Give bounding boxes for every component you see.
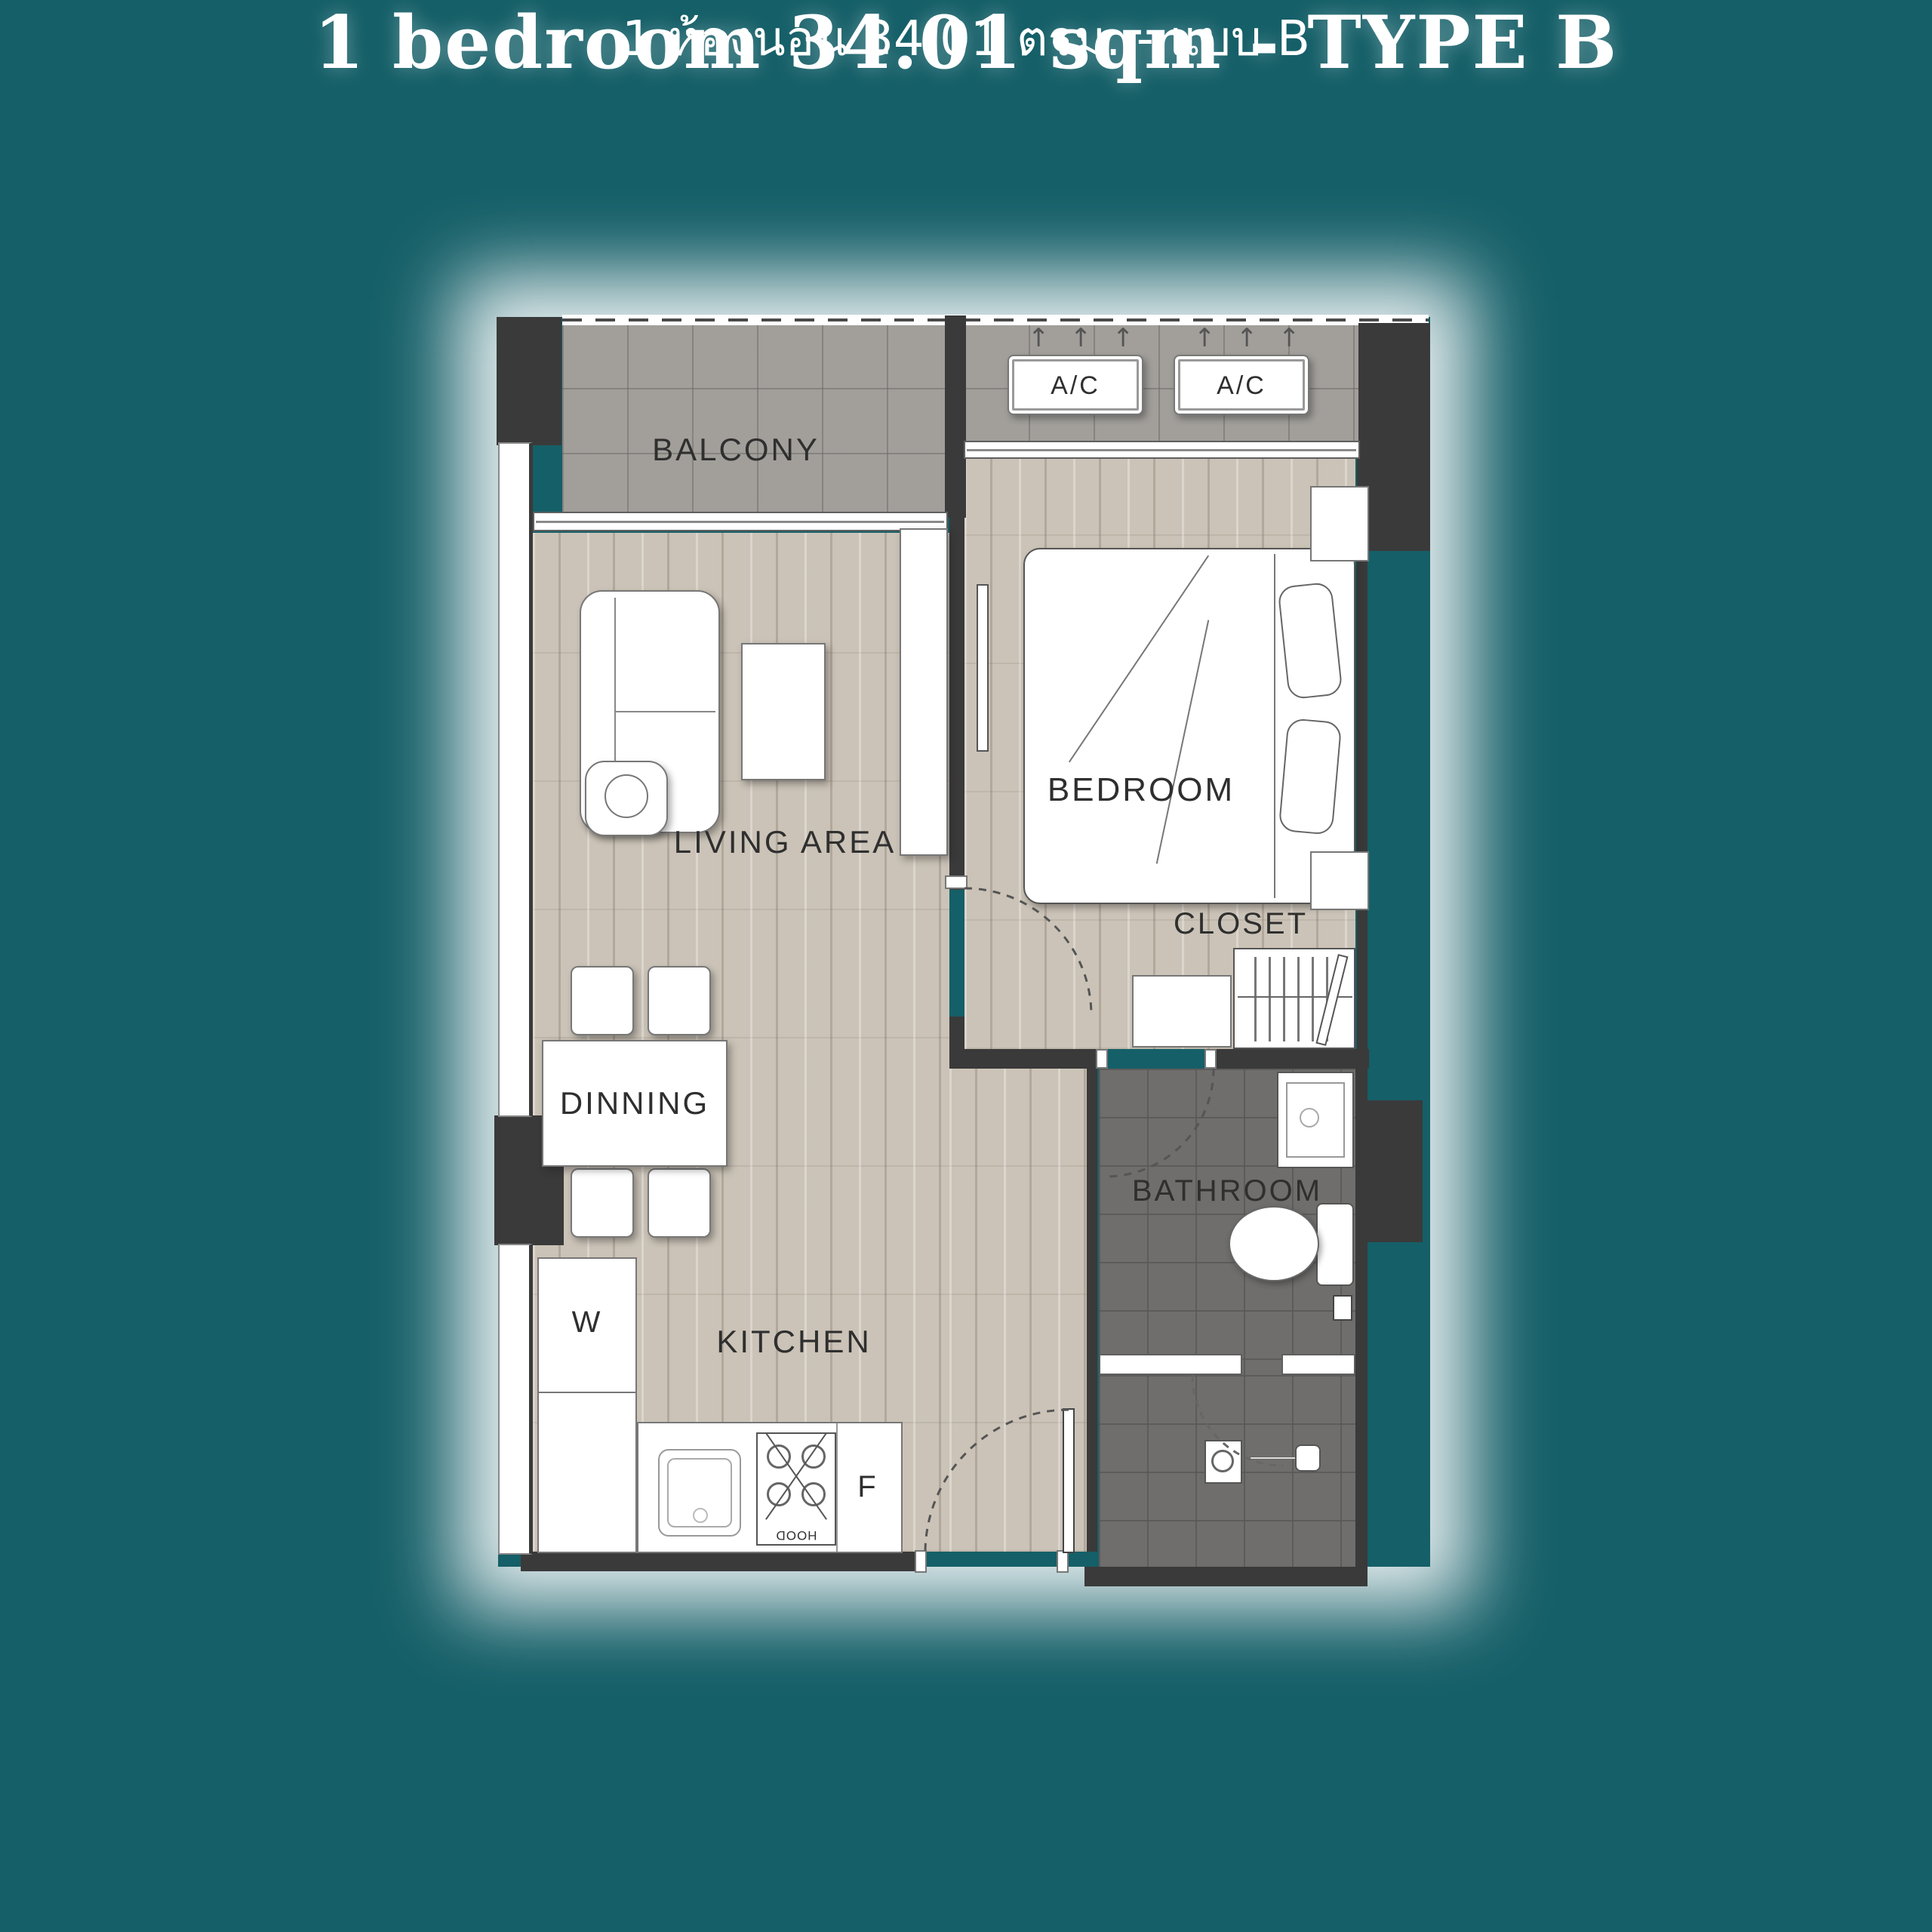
dining-chair <box>648 1168 711 1238</box>
sofa-seat-seam <box>616 711 715 712</box>
toilet-tank <box>1316 1203 1354 1286</box>
entry-door-jamb-right <box>1057 1550 1069 1573</box>
ac-unit-2: A/C <box>1174 355 1309 415</box>
entry-door-leaf <box>1063 1408 1075 1553</box>
sink-drain <box>693 1508 708 1523</box>
wall-block-top-right <box>1358 323 1430 551</box>
wall-bath-top-right <box>1214 1049 1369 1069</box>
balcony-sliding-door <box>533 512 948 531</box>
dining-table: DINNING <box>542 1040 728 1167</box>
balcony-floor <box>562 323 945 513</box>
washer-cabinet-divider <box>539 1392 635 1393</box>
floor-plan-page: ↑ ↑ ↑ ↑ ↑ ↑ A/C A/C DINNING W F <box>0 0 1932 1932</box>
bed <box>1023 548 1355 904</box>
kitchen-sink <box>658 1449 741 1537</box>
dining-chair <box>648 966 711 1035</box>
wall-bath-top-left <box>949 1049 1103 1069</box>
wardrobe <box>1233 948 1355 1049</box>
shower-partition-right <box>1281 1354 1355 1375</box>
wall-bottom-kitchen <box>521 1552 922 1571</box>
balcony-label: BALCONY <box>623 432 849 468</box>
bedroom-window <box>964 441 1360 459</box>
wall-living-bedroom <box>949 456 964 890</box>
bathroom-door-jamb-left <box>1096 1049 1108 1069</box>
hood-label: HOOD <box>758 1527 835 1543</box>
pillow <box>1278 718 1343 835</box>
wall-bath-left <box>1087 1069 1097 1552</box>
nightstand <box>1310 851 1369 910</box>
closet-label: CLOSET <box>1128 907 1354 941</box>
ac-unit-1: A/C <box>1008 355 1143 415</box>
fridge-label: F <box>832 1470 904 1504</box>
ac-label: A/C <box>1009 371 1142 401</box>
toilet-bowl <box>1229 1206 1319 1281</box>
armchair <box>585 761 668 836</box>
wall-left-lower-band <box>498 1244 533 1555</box>
tv-console <box>900 528 948 856</box>
shower-partition-left <box>1099 1354 1242 1375</box>
armchair-cushion <box>605 774 648 818</box>
washer-label: W <box>539 1306 635 1340</box>
ac-arrow-icon: ↑ <box>1028 323 1050 353</box>
wall-bottom-shower <box>1084 1567 1367 1586</box>
ac-arrow-icon: ↑ <box>1194 323 1216 353</box>
bed-blanket-fold <box>1156 620 1210 863</box>
bedroom-door-jamb <box>945 875 968 889</box>
balcony-door-seam <box>536 521 944 523</box>
coffee-table <box>741 643 826 780</box>
wall-block-mid-right <box>1367 1100 1423 1242</box>
shower-drain-grate <box>1211 1450 1234 1472</box>
tv <box>977 584 989 752</box>
bed-headboard-seam <box>1274 554 1275 898</box>
bathroom-label: BATHROOM <box>1114 1174 1340 1208</box>
dining-label: DINNING <box>543 1085 726 1121</box>
kitchen-label: KITCHEN <box>681 1324 907 1360</box>
washer-cabinet: W <box>537 1257 637 1553</box>
ac-arrow-icon: ↑ <box>1278 323 1300 353</box>
roof-dashed-line <box>562 318 1429 321</box>
entry-door-jamb-left <box>915 1550 927 1573</box>
wardrobe-slats <box>1242 957 1331 1041</box>
pillow <box>1277 582 1343 700</box>
bedroom-window-seam <box>967 449 1356 451</box>
bedroom-label: BEDROOM <box>1028 771 1254 809</box>
bathroom-sink <box>1277 1072 1354 1168</box>
bathroom-sink-drain <box>1300 1108 1319 1128</box>
ac-label: A/C <box>1175 371 1308 401</box>
shower-drain <box>1204 1440 1242 1484</box>
living-area-label: LIVING AREA <box>672 824 898 860</box>
shower-head <box>1295 1444 1321 1472</box>
wall-left-upper-band <box>498 442 533 1117</box>
wall-block-top-left <box>497 317 561 445</box>
wall-bath-right <box>1355 1069 1367 1567</box>
dining-chair <box>571 1168 634 1238</box>
stove-burner <box>801 1444 826 1469</box>
ac-arrow-icon: ↑ <box>1070 323 1092 353</box>
bed-blanket-fold <box>1069 555 1209 763</box>
stove: HOOD <box>756 1432 836 1546</box>
ac-arrow-icon: ↑ <box>1112 323 1134 353</box>
dining-chair <box>571 966 634 1035</box>
plan-subtitle-thai: 1 ห้องนอน 34.01 ตรม. - แบบ B <box>0 0 1932 77</box>
bathroom-door-jamb-right <box>1204 1049 1217 1069</box>
closet-cabinet <box>1132 975 1232 1048</box>
wall-living-bedroom-stub <box>949 1017 964 1049</box>
ac-arrow-icon: ↑ <box>1236 323 1258 353</box>
toilet-paper-holder <box>1333 1295 1352 1321</box>
nightstand <box>1310 486 1369 561</box>
